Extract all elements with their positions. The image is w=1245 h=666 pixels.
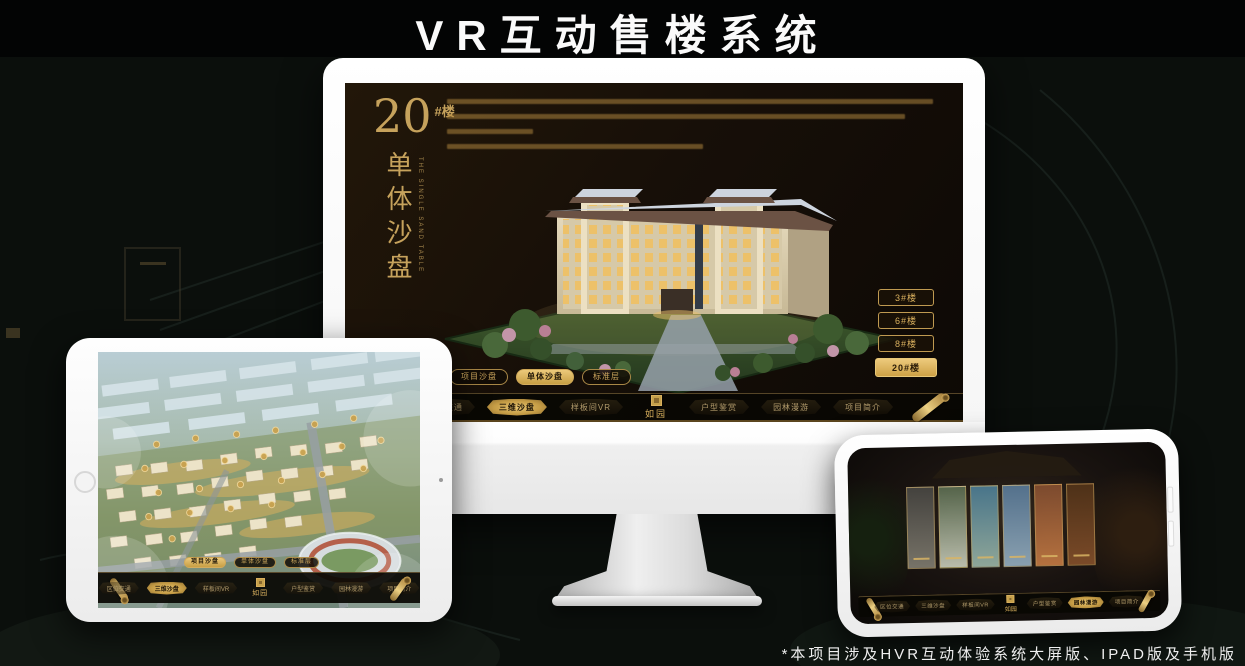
logo-text: 如园 [645, 407, 667, 420]
tablet-nav-bar: 区位交通 三维沙盘 样板间VR 如园 [98, 572, 420, 603]
edition-footnote: *本项目涉及HVR互动体验系统大屏版、IPAD版及手机版 [782, 643, 1237, 664]
gallery-panel[interactable] [1066, 483, 1096, 566]
headline-vertical: 单体沙盘 [379, 151, 416, 287]
gallery-panel[interactable] [1034, 484, 1064, 567]
nav-item[interactable]: 样板间VR [559, 399, 623, 416]
interior-wood-shadow [1090, 456, 1168, 608]
nav-item[interactable]: 三维沙盘 [487, 399, 547, 416]
tablet-subtabs: 项目沙盘 单体沙盘 标准层 [184, 557, 319, 568]
building-headline: 20 #楼 [373, 93, 455, 139]
nav-item-label: 户型鉴赏 [701, 403, 737, 412]
nav-item-label: 户型鉴赏 [291, 587, 315, 593]
floor-button[interactable]: 3#楼 [878, 289, 934, 306]
building-model-viewport[interactable] [433, 139, 903, 394]
scroll-handle-icon[interactable] [910, 392, 947, 422]
nav-item-label: 园林漫游 [1074, 600, 1098, 607]
project-logo: 如园 [645, 395, 667, 420]
sub-tab-label: 标准层 [291, 559, 312, 565]
nav-item[interactable]: 区位交通 [874, 600, 910, 613]
nav-item[interactable]: 园林漫游 [1068, 596, 1104, 609]
phone-device: 区位交通 三维沙盘 样板间VR 如园 [834, 428, 1182, 637]
gallery-panel[interactable] [1002, 485, 1032, 568]
tablet-screen: 项目沙盘 单体沙盘 标准层 区位交通 [98, 352, 420, 608]
seal-icon [651, 395, 662, 406]
sub-tab[interactable]: 项目沙盘 [184, 557, 226, 568]
panorama-gallery [906, 483, 1096, 569]
floor-button-group: 3#楼 6#楼 8#楼 20#楼 [875, 289, 937, 377]
nav-item[interactable]: 样板间VR [956, 598, 995, 611]
gallery-panel[interactable] [938, 486, 968, 569]
side-button[interactable] [1168, 521, 1175, 547]
sub-tab[interactable]: 单体沙盘 [516, 369, 574, 385]
nav-item-label: 样板间VR [962, 602, 989, 609]
camera-dot [439, 478, 443, 482]
project-logo: 如园 [252, 578, 268, 598]
description-line [447, 99, 933, 104]
nav-item[interactable]: 园林漫游 [761, 399, 821, 416]
nav-item-label: 样板间VR [203, 587, 229, 593]
panel-caption-mark [1042, 555, 1058, 557]
nav-item[interactable]: 区位交通 [99, 582, 139, 595]
nav-item-label: 园林漫游 [773, 403, 809, 412]
nav-item[interactable]: 样板间VR [195, 582, 237, 595]
nav-left-group: 区位交通 三维沙盘 样板间VR [99, 582, 237, 595]
nav-item[interactable]: 项目简介 [833, 399, 893, 416]
sub-tab-label: 单体沙盘 [241, 559, 269, 565]
nav-item-label: 三维沙盘 [499, 403, 535, 412]
logo-text: 如园 [252, 588, 268, 598]
page-title: VR互动售楼系统 [0, 2, 1245, 63]
nav-item-label: 区位交通 [107, 587, 131, 593]
floor-button[interactable]: 8#楼 [878, 335, 934, 352]
nav-left-group: 区位交通 三维沙盘 样板间VR [874, 598, 995, 613]
sub-tab[interactable]: 标准层 [582, 369, 631, 385]
nav-right-group: 户型鉴赏 园林漫游 项目简介 [1027, 595, 1145, 609]
sandtable-subtabs: 项目沙盘 单体沙盘 标准层 [450, 369, 631, 385]
floor-button[interactable]: 6#楼 [878, 312, 934, 329]
logo-text: 如园 [1005, 604, 1017, 613]
panel-caption-mark [946, 557, 962, 559]
seal-icon [256, 578, 265, 587]
nav-item-label: 样板间VR [571, 403, 611, 412]
nav-item-label: 三维沙盘 [155, 587, 179, 593]
sub-tab[interactable]: 标准层 [284, 557, 319, 568]
seal-icon [1007, 595, 1015, 603]
panel-caption-mark [914, 558, 930, 560]
nav-item-label: 项目简介 [1115, 599, 1139, 606]
headline-vertical-en: THE SINGLE SAND TABLE [417, 157, 423, 273]
nav-item-label: 项目简介 [845, 403, 881, 412]
home-button[interactable] [74, 471, 96, 493]
sub-tab-label: 单体沙盘 [527, 372, 563, 381]
description-line [447, 114, 905, 119]
gallery-panel[interactable] [906, 487, 936, 570]
foliage-shadow [847, 467, 910, 609]
nav-item-label: 区位交通 [880, 604, 904, 611]
nav-item[interactable]: 园林漫游 [331, 582, 371, 595]
pavilion-silhouette [931, 449, 1082, 478]
monitor-base [552, 596, 762, 606]
nav-item[interactable]: 户型鉴赏 [1027, 597, 1063, 610]
panel-caption-mark [978, 556, 994, 558]
nav-item[interactable]: 户型鉴赏 [283, 582, 323, 595]
nav-item[interactable]: 三维沙盘 [915, 599, 951, 612]
sub-tab-label: 标准层 [593, 372, 620, 381]
tablet-device: 项目沙盘 单体沙盘 标准层 区位交通 [66, 338, 452, 622]
gallery-panel[interactable] [970, 485, 1000, 568]
phone-screen[interactable]: 区位交通 三维沙盘 样板间VR 如园 [847, 442, 1169, 625]
nav-right-group: 户型鉴赏 园林漫游 项目简介 [689, 399, 893, 416]
sub-tab-label: 项目沙盘 [461, 372, 497, 381]
nav-item[interactable]: 户型鉴赏 [689, 399, 749, 416]
nav-item-label: 园林漫游 [339, 587, 363, 593]
floor-button-label: 20#楼 [892, 361, 920, 374]
floor-button-label: 6#楼 [895, 314, 917, 327]
sub-tab-label: 项目沙盘 [191, 559, 219, 565]
nav-item-label: 户型鉴赏 [1033, 601, 1057, 608]
phone-nav-bar: 区位交通 三维沙盘 样板间VR 如园 [858, 590, 1160, 617]
masterplan-aerial-view[interactable] [98, 352, 420, 608]
sub-tab[interactable]: 项目沙盘 [450, 369, 508, 385]
headline-number: 20 [373, 93, 432, 139]
side-button[interactable] [1167, 487, 1174, 513]
sub-tab[interactable]: 单体沙盘 [234, 557, 276, 568]
floor-button[interactable]: 20#楼 [875, 358, 937, 377]
panel-caption-mark [1074, 554, 1090, 556]
nav-item-label: 三维沙盘 [921, 603, 945, 610]
floor-button-label: 8#楼 [895, 337, 917, 350]
description-line [447, 129, 533, 134]
project-logo: 如园 [1005, 595, 1017, 613]
floor-button-label: 3#楼 [895, 291, 917, 304]
nav-item[interactable]: 三维沙盘 [147, 582, 187, 595]
panel-caption-mark [1010, 556, 1026, 558]
building-model-illustration [433, 139, 903, 394]
